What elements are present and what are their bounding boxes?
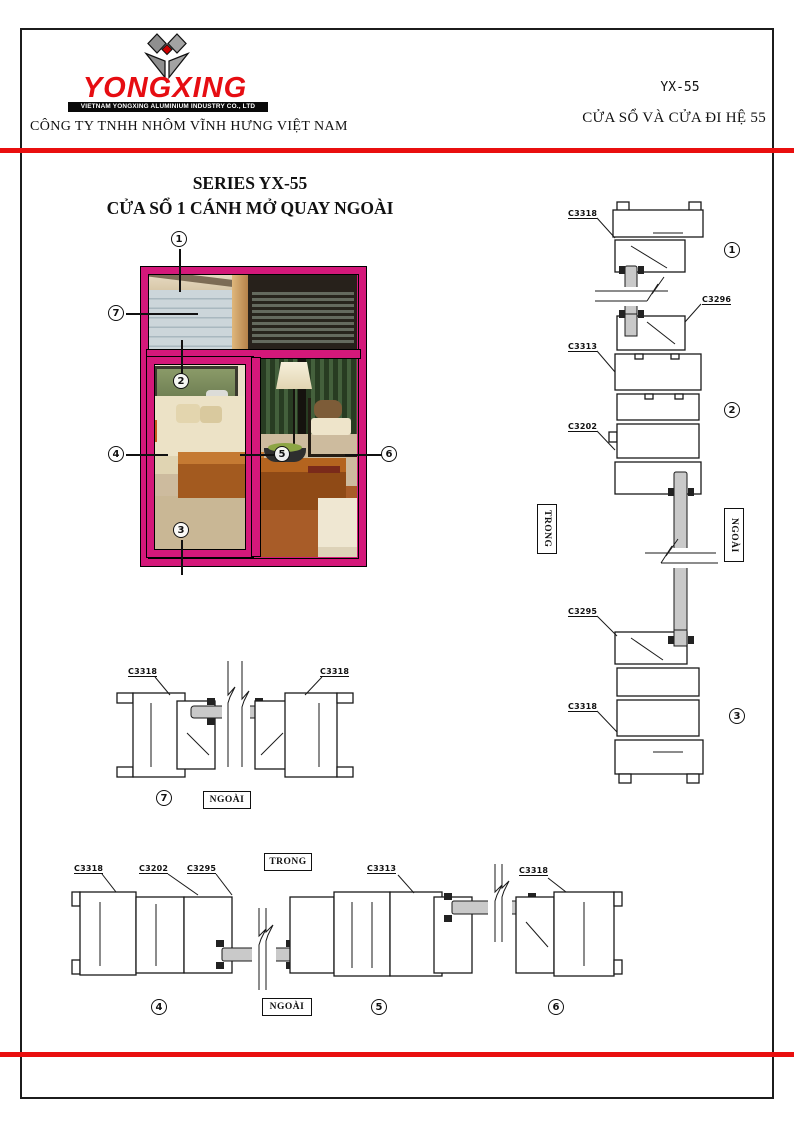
callout-7: 7 [108, 305, 124, 321]
series-code: YX-55 [620, 80, 740, 95]
vsec-c3313-transom [615, 354, 701, 420]
callout-6: 6 [381, 446, 397, 462]
header-divider-line [0, 148, 794, 153]
window-sash [147, 357, 253, 557]
callout-line-4 [126, 454, 168, 456]
callout-v3: 3 [729, 708, 745, 724]
hb-left-frame [72, 892, 136, 975]
window-mullion [251, 357, 261, 557]
label-hb-c3202: C3202 [139, 864, 168, 874]
vsec-c3296-sash [617, 310, 685, 350]
callout-3: 3 [173, 522, 189, 538]
label-ngoai-bottom: NGOÀI [262, 998, 312, 1016]
hb-right-group [516, 892, 622, 976]
callout-line-7 [126, 313, 198, 315]
callout-line-1 [179, 249, 181, 292]
label-v-c3296: C3296 [702, 295, 731, 305]
callout-v2: 2 [724, 402, 740, 418]
label-ngoai-section7: NGOÀI [203, 791, 251, 809]
h7-left-frame [117, 693, 185, 777]
label-trong-bottom: TRONG [264, 853, 312, 871]
callout-line-5 [240, 454, 275, 456]
callout-1: 1 [171, 231, 187, 247]
horizontal-section-bottom-drawing [60, 852, 660, 1002]
document-page: YONGXING VIETNAM YONGXING ALUMINIUM INDU… [0, 0, 794, 1123]
label-ngoai-vertical: NGOÀI [724, 508, 744, 562]
hb-middle-group [290, 892, 472, 976]
label-hb-c3318-left: C3318 [74, 864, 103, 874]
label-v-c3295: C3295 [568, 607, 597, 617]
footer-divider-line [0, 1052, 794, 1057]
callout-5: 5 [274, 446, 290, 462]
vsec-c3295-sash [615, 630, 694, 664]
vsec-head-frame [613, 202, 703, 237]
label-h7-c3318-right: C3318 [320, 667, 349, 677]
callout-line-3 [181, 540, 183, 575]
label-v-c3202: C3202 [568, 422, 597, 432]
callout-b5: 5 [371, 999, 387, 1015]
callout-4: 4 [108, 446, 124, 462]
brand-wordmark: YONGXING [62, 72, 268, 105]
hb-sash-frame [136, 897, 232, 973]
vsec-c3318-sill [615, 668, 703, 783]
drawing-title-line1: SERIES YX-55 [88, 171, 412, 196]
callout-2: 2 [173, 373, 189, 389]
label-trong-vertical: TRONG [537, 504, 557, 554]
series-name: CỬA SỔ VÀ CỬA ĐI HỆ 55 [582, 110, 766, 127]
callout-b6: 6 [548, 999, 564, 1015]
brand-tagline: VIETNAM YONGXING ALUMINIUM INDUSTRY CO.,… [68, 102, 268, 112]
callout-v1: 1 [724, 242, 740, 258]
label-hb-c3318-right: C3318 [519, 866, 548, 876]
drawing-title-line2: CỬA SỔ 1 CÁNH MỞ QUAY NGOÀI [88, 196, 412, 221]
window-elevation [140, 266, 367, 567]
callout-line-6 [345, 454, 382, 456]
label-v-c3318-bottom: C3318 [568, 702, 597, 712]
company-name: CÔNG TY TNHH NHÔM VĨNH HƯNG VIỆT NAM [30, 119, 348, 135]
label-hb-c3313: C3313 [367, 864, 396, 874]
callout-h7: 7 [156, 790, 172, 806]
label-h7-c3318-left: C3318 [128, 667, 157, 677]
label-hb-c3295: C3295 [187, 864, 216, 874]
label-v-c3318-top: C3318 [568, 209, 597, 219]
label-v-c3313: C3313 [568, 342, 597, 352]
h7-right-frame [285, 693, 353, 777]
callout-b4: 4 [151, 999, 167, 1015]
callout-line-2 [181, 340, 183, 374]
drawing-title: SERIES YX-55 CỬA SỔ 1 CÁNH MỞ QUAY NGOÀI [88, 171, 412, 222]
